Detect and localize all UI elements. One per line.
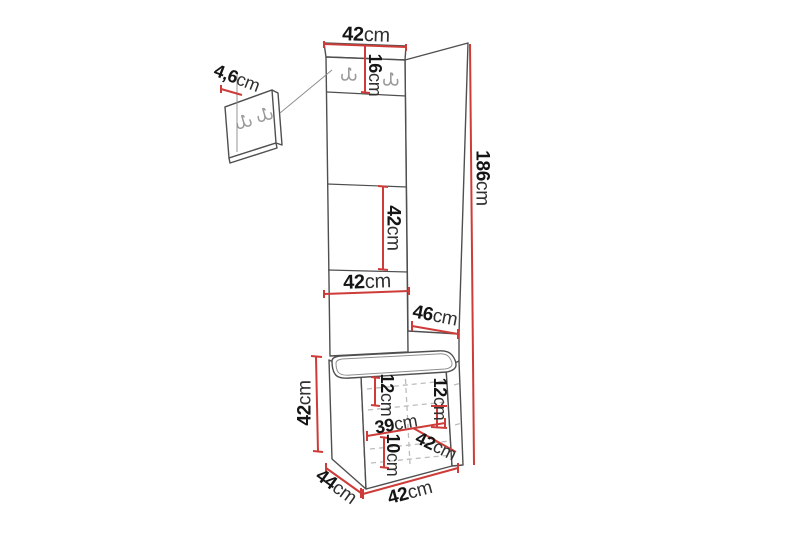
dim-label-panel-width: 42cm: [343, 271, 391, 293]
dim-unit: cm: [363, 24, 390, 47]
dim-label-hook-height: 16cm: [366, 54, 384, 97]
dim-label-total-height: 186cm: [473, 150, 492, 206]
dim-unit: cm: [364, 270, 391, 293]
dim-line-total-height: [470, 44, 474, 465]
dim-label-bottom-inset: 10cm: [384, 434, 402, 477]
dim-value: 186: [472, 150, 493, 181]
dim-unit: cm: [383, 453, 403, 476]
dim-value: 42: [383, 205, 404, 226]
dim-unit: cm: [295, 380, 316, 405]
dim-value: 16: [365, 54, 385, 73]
dim-unit: cm: [431, 305, 459, 330]
dim-unit: cm: [365, 73, 385, 96]
dim-unit: cm: [472, 181, 493, 206]
detail-callout-line: [280, 70, 332, 113]
dim-unit: cm: [383, 226, 404, 251]
bench-left-face: [329, 360, 366, 489]
dim-value: 42: [343, 271, 365, 294]
dim-value: 10: [383, 434, 403, 453]
detail-hook-plate: [225, 90, 282, 163]
dim-label-bench-side-inset: 12cm: [431, 378, 449, 421]
dim-value: 12: [377, 374, 397, 393]
dim-unit: cm: [377, 393, 397, 416]
dim-unit: cm: [430, 397, 450, 420]
dim-value: 42: [295, 405, 316, 426]
diagram-canvas: 42cm 4,6cm 16cm 186cm 42cm 42cm 46cm 42c…: [0, 0, 800, 533]
dim-label-bench-top-inset: 12cm: [378, 374, 396, 417]
dim-label-top-width: 42cm: [342, 24, 390, 46]
dim-label-mid-height: 42cm: [384, 205, 403, 250]
dim-unit: cm: [392, 410, 419, 434]
dim-label-bench-height: 42cm: [296, 380, 315, 425]
tall-unit-side-panel: [405, 43, 468, 334]
dim-value: 12: [430, 378, 450, 397]
dim-value: 42: [342, 23, 364, 46]
